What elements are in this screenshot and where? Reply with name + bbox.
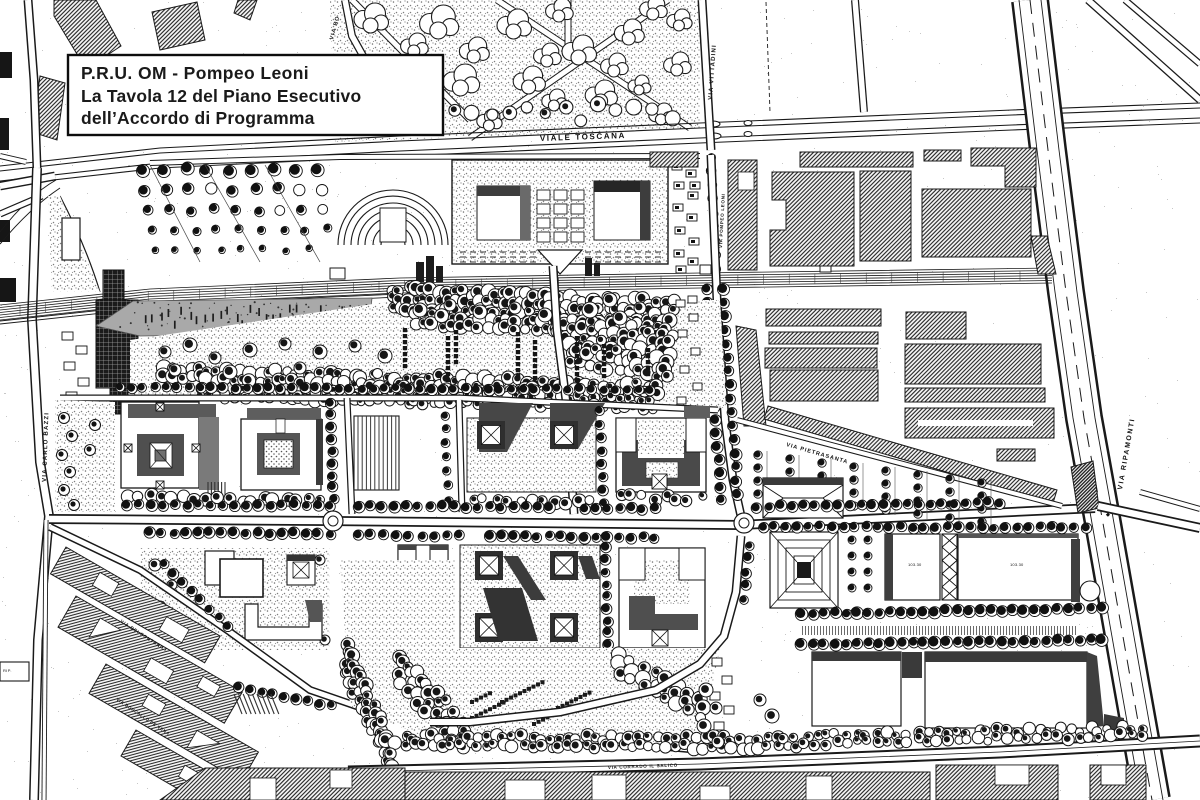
svg-text:La Tavola 12 del Piano Esecuti: La Tavola 12 del Piano Esecutivo [81,86,361,106]
svg-text:P.R.U. OM - Pompeo Leoni: P.R.U. OM - Pompeo Leoni [81,63,309,83]
svg-text:dell’Accordo di Programma: dell’Accordo di Programma [81,108,315,128]
svg-text:103.30: 103.30 [1010,562,1024,567]
svg-text:103.30: 103.30 [908,562,922,567]
svg-text:◆: ◆ [1105,512,1111,518]
svg-text:RIP.: RIP. [3,668,12,673]
